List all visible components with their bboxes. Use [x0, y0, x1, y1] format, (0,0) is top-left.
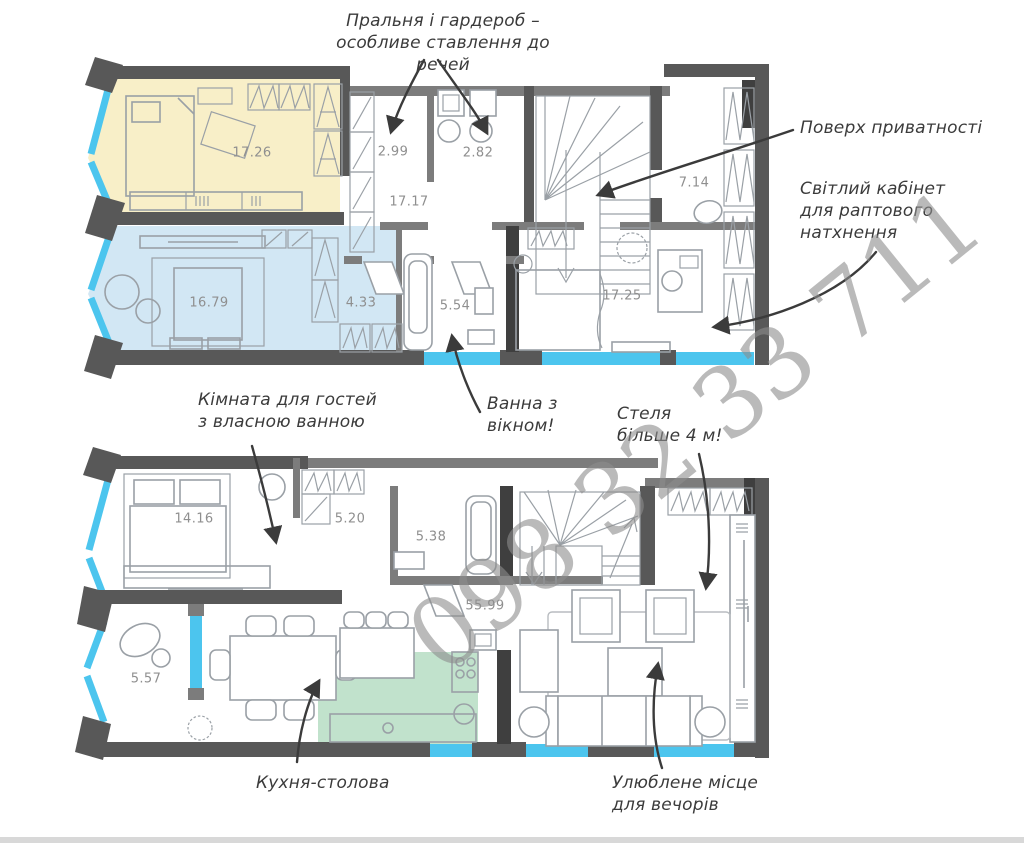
- annotation-kitchen: Кухня-столова: [256, 772, 390, 794]
- area-label-bathroom-window: 5.54: [440, 299, 471, 314]
- page-bottom-edge: [0, 837, 1024, 843]
- area-label-living-kitchen: 55.99: [465, 599, 504, 614]
- annotation-kitchen-line1: Кухня-столова: [256, 772, 390, 794]
- arrow-ceiling: [699, 454, 709, 588]
- annotation-evenings-line1: Улюблене місце: [612, 772, 758, 794]
- area-label-wardrobe: 2.99: [378, 145, 409, 160]
- annotation-ceiling-line1: Стеля: [617, 403, 723, 425]
- area-label-bathroom: 5.38: [416, 530, 447, 545]
- laundry-appliances: [438, 90, 496, 142]
- annotation-privacy: Поверх приватності: [800, 117, 982, 139]
- area-label-corridor: 17.17: [389, 195, 428, 210]
- room-fill-master-bedroom: [88, 226, 400, 354]
- area-label-balcony: 5.57: [131, 672, 162, 687]
- area-label-bedroom-yellow: 17.26: [232, 146, 271, 161]
- annotation-ceiling: Стеля більше 4 м!: [617, 403, 723, 447]
- area-label-office-bedroom: 17.25: [602, 289, 641, 304]
- living-room-furniture: [519, 590, 730, 746]
- annotation-office-line1: Світлий кабінет: [800, 178, 945, 200]
- area-label-guest-bedroom: 14.16: [174, 512, 213, 527]
- guest-bedroom-furniture: [124, 474, 285, 589]
- annotation-guest-line1: Кімната для гостей: [198, 389, 377, 411]
- upper-floor-plan: [84, 57, 769, 379]
- floor-plan-page: 17.26 2.99 2.82 17.17 7.14 16.79 4.33 5.…: [0, 0, 1024, 843]
- annotation-office-line3: натхнення: [800, 222, 945, 244]
- annotation-bath-line1: Ванна з: [487, 393, 558, 415]
- area-label-laundry: 2.82: [463, 146, 494, 161]
- annotation-ceiling-line2: більше 4 м!: [617, 425, 723, 447]
- annotation-bath-line2: вікном!: [487, 415, 558, 437]
- annotation-laundry-line1: Пральня і гардероб –: [318, 10, 568, 32]
- lower-floor-plan: [75, 447, 769, 760]
- annotation-office-line2: для раптового: [800, 200, 945, 222]
- annotation-guest-line2: з власною ванною: [198, 411, 377, 433]
- annotation-evenings: Улюблене місце для вечорів: [612, 772, 758, 816]
- annotation-laundry: Пральня і гардероб – особливе ставлення …: [318, 10, 568, 76]
- area-label-wardrobe-master: 4.33: [346, 296, 377, 311]
- arrow-to-bathroom: [452, 336, 480, 412]
- annotation-guest: Кімната для гостей з власною ванною: [198, 389, 377, 433]
- annotation-bath: Ванна з вікном!: [487, 393, 558, 437]
- area-label-hall: 5.20: [335, 512, 366, 527]
- lower-staircase: [520, 490, 640, 585]
- balcony-furniture: [114, 617, 170, 667]
- annotation-evenings-line2: для вечорів: [612, 794, 758, 816]
- upper-staircase: [536, 96, 650, 294]
- area-label-bedroom-master: 16.79: [189, 296, 228, 311]
- area-label-hall-privacy: 7.14: [679, 176, 710, 191]
- annotation-laundry-line2: особливе ставлення до речей: [318, 32, 568, 76]
- annotation-privacy-line1: Поверх приватності: [800, 117, 982, 139]
- annotation-office: Світлий кабінет для раптового натхнення: [800, 178, 945, 244]
